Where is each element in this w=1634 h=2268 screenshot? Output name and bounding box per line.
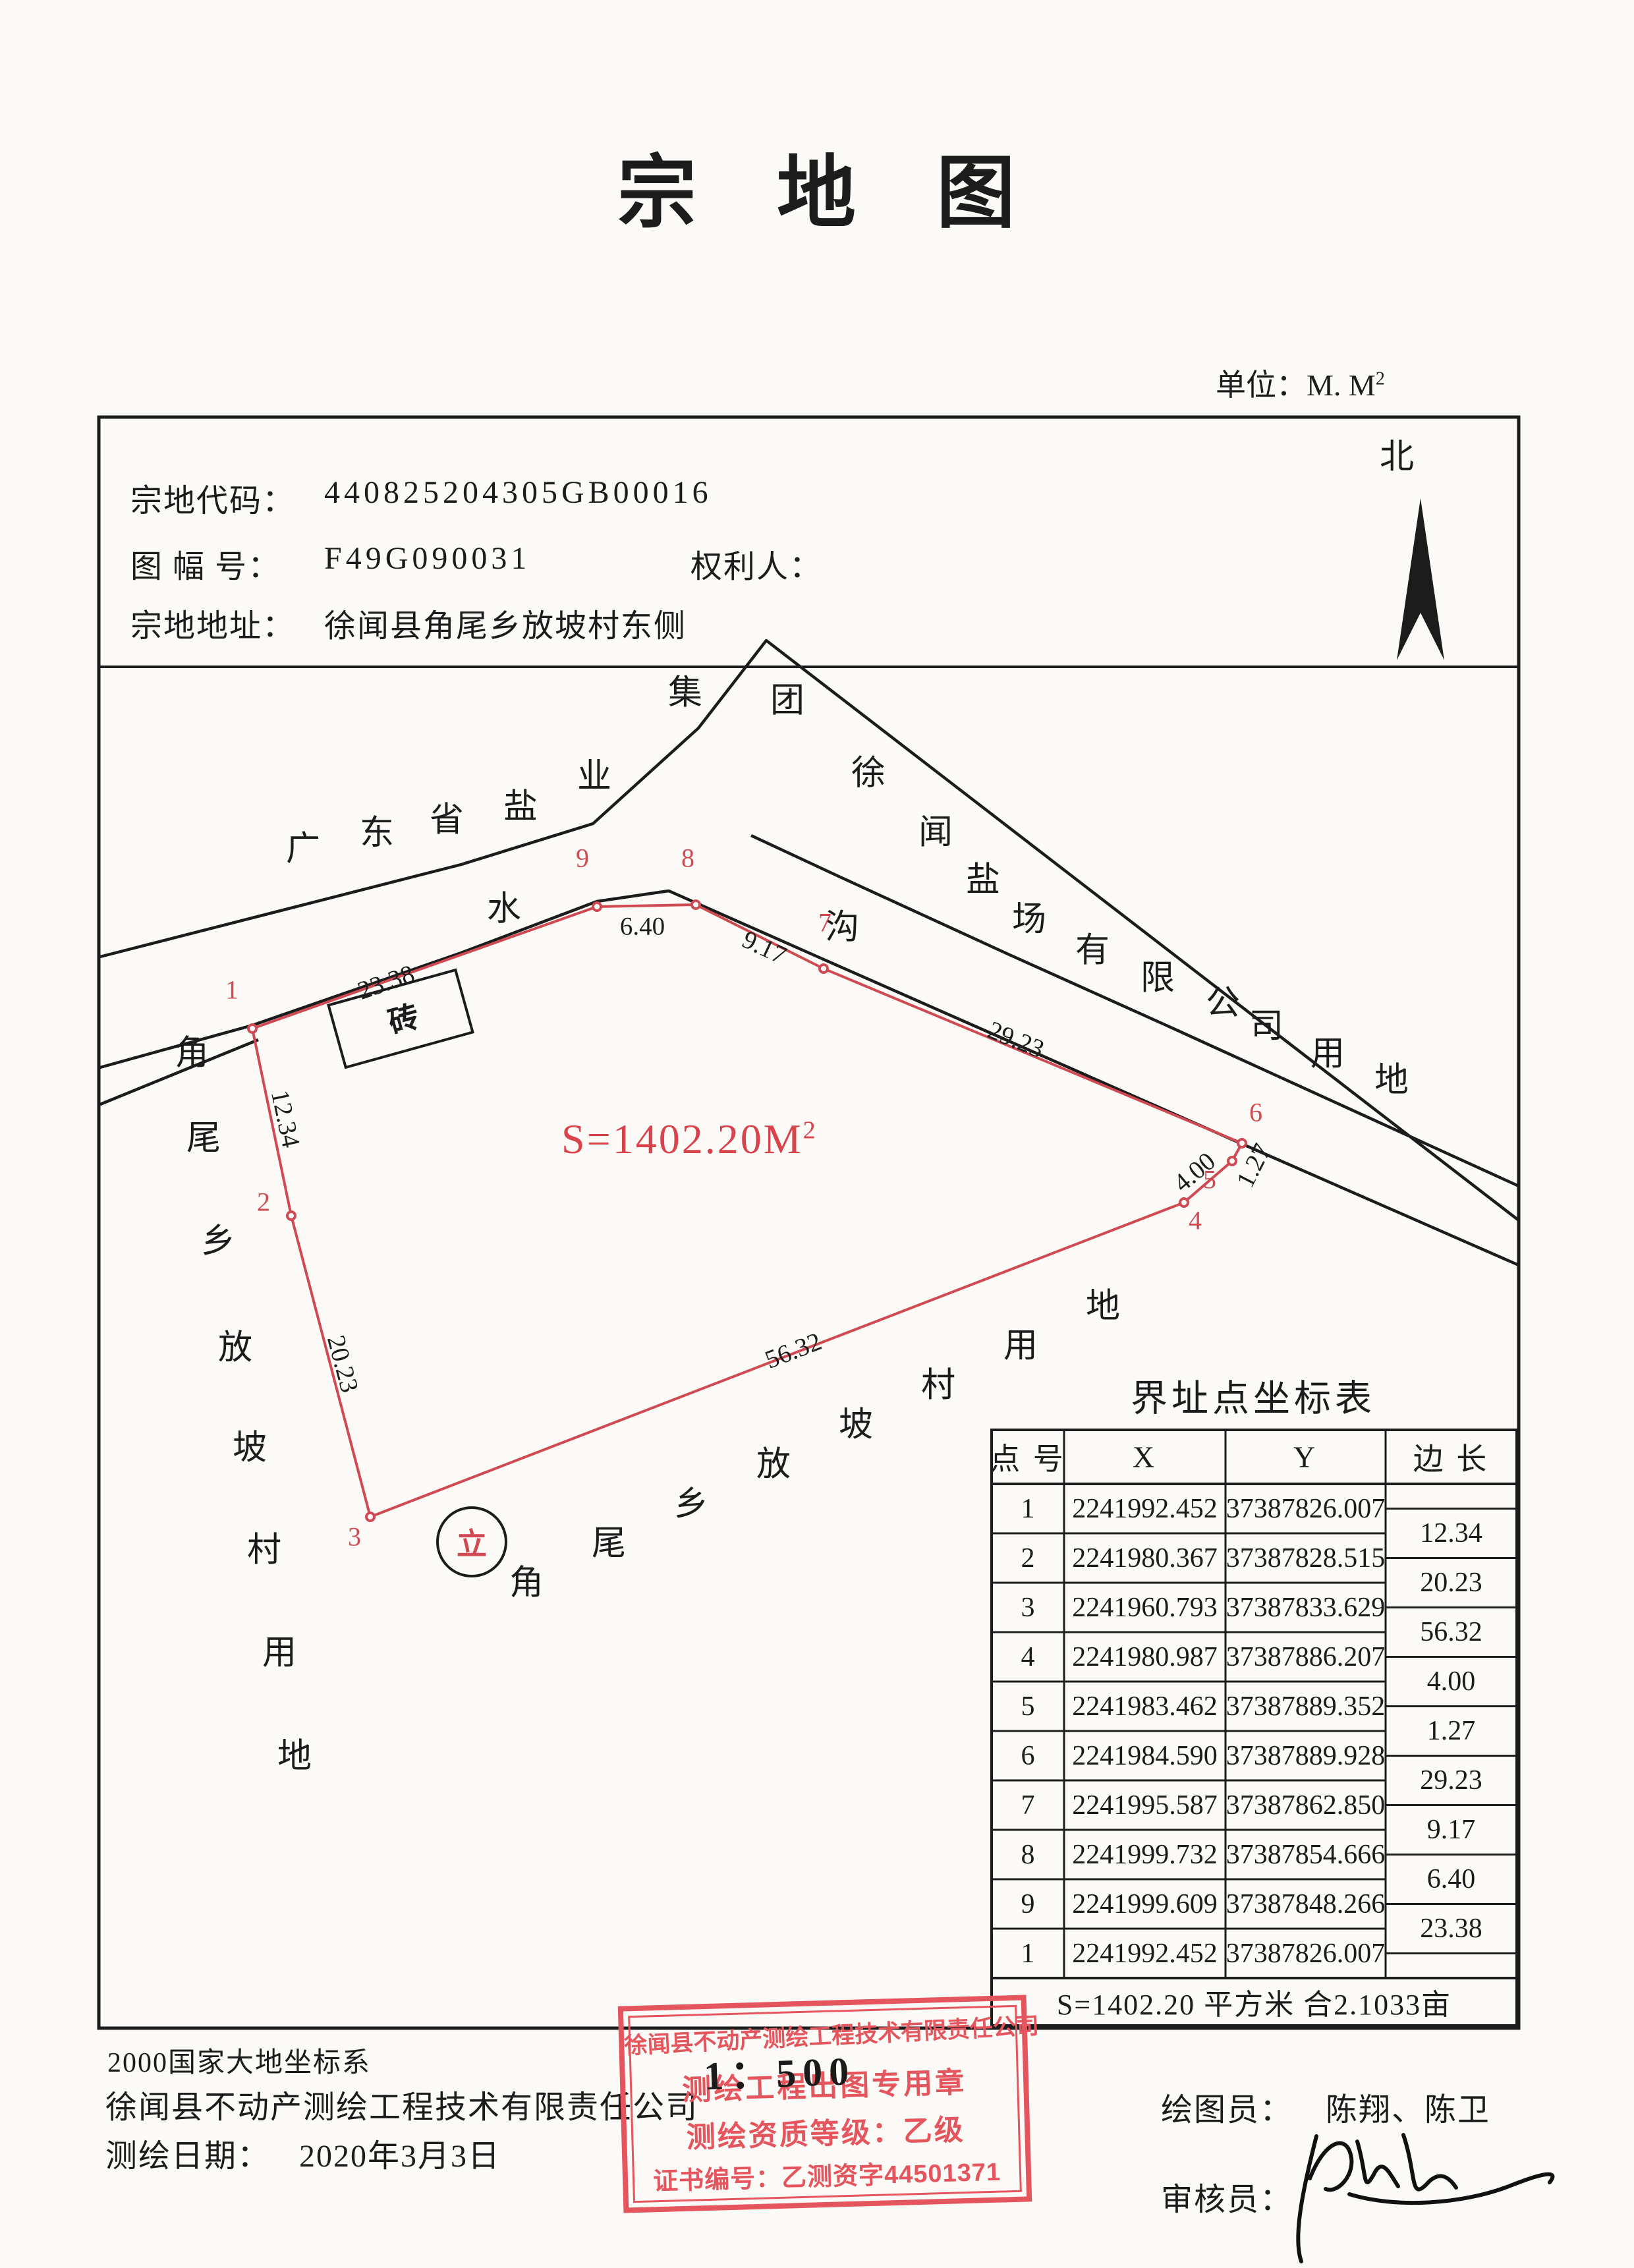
map-text-char-12: 有: [1075, 922, 1110, 972]
map-text-char-33: 村: [921, 1357, 955, 1407]
map-text-char-31: 放: [756, 1436, 791, 1486]
checker-signature-stroke-1: [1298, 2136, 1316, 2261]
table-y-coord-5: 37387889.352: [1226, 1691, 1386, 1722]
map-frame-border: [99, 417, 1519, 2028]
map-text-char-29: 尾: [592, 1516, 626, 1565]
boundary-point-number-7: 7: [818, 907, 831, 938]
map-text-char-7: 团: [770, 673, 804, 722]
survey-date-row: 测绘日期： 2020年3月3日: [105, 2130, 501, 2176]
table-point-no-8: 8: [1021, 1839, 1035, 1871]
right-holder-label: 权利人：: [690, 540, 822, 586]
map-text-char-27: 地: [277, 1728, 312, 1778]
table-x-coord-7: 2241995.587: [1072, 1790, 1218, 1821]
table-header-4: 边 长: [1413, 1435, 1490, 1479]
sheet-number-label: 图 幅 号：: [130, 540, 281, 586]
boundary-point-dot-5: [1228, 1157, 1236, 1165]
table-header-3: Y: [1293, 1440, 1318, 1475]
map-text-char-21: 尾: [186, 1110, 221, 1160]
table-point-no-1: 1: [1021, 1493, 1035, 1525]
checker-signature-stroke-2: [1310, 2143, 1351, 2190]
map-text-char-34: 用: [1003, 1318, 1038, 1367]
unit-label: 单位：M. M2: [1216, 361, 1385, 405]
table-y-coord-3: 37387833.629: [1226, 1592, 1386, 1624]
parcel-address-label: 宗地地址：: [130, 600, 295, 646]
table-x-coord-6: 2241984.590: [1072, 1740, 1218, 1772]
boundary-point-dot-9: [593, 903, 601, 911]
table-edge-length-8: 6.40: [1427, 1863, 1476, 1895]
table-x-coord-4: 2241980.987: [1072, 1641, 1218, 1673]
boundary-point-dot-1: [248, 1025, 256, 1033]
map-text-char-13: 限: [1141, 950, 1175, 1000]
table-point-no-3: 3: [1021, 1592, 1035, 1624]
table-y-coord-4: 37387886.207: [1226, 1641, 1386, 1673]
checker-label: 审核员：: [1161, 2173, 1293, 2219]
map-text-char-5: 业: [577, 749, 611, 798]
map-text-char-16: 用: [1310, 1026, 1345, 1075]
map-text-char-1: 广: [286, 821, 320, 870]
table-point-no-2: 2: [1021, 1543, 1035, 1574]
table-y-coord-2: 37387828.515: [1226, 1543, 1386, 1574]
boundary-point-number-9: 9: [576, 843, 589, 874]
boundary-point-number-2: 2: [257, 1187, 270, 1218]
table-y-coord-10: 37387826.007: [1226, 1938, 1386, 1970]
map-text-char-20: 角: [175, 1025, 209, 1075]
table-x-coord-10: 2241992.452: [1072, 1938, 1218, 1970]
parcel-map-document: 宗 地 图 单位：M. M2 北 宗地代码： 440825204305GB000…: [0, 0, 1634, 2268]
parcel-code-value: 440825204305GB00016: [324, 474, 712, 511]
map-text-char-9: 闻: [918, 805, 953, 854]
table-x-coord-2: 2241980.367: [1072, 1543, 1218, 1574]
table-edge-length-7: 9.17: [1427, 1814, 1476, 1846]
map-text-char-17: 地: [1374, 1052, 1409, 1102]
boundary-point-number-6: 6: [1249, 1097, 1262, 1128]
sheet-number-value: F49G090031: [324, 540, 530, 577]
boundary-point-number-1: 1: [225, 975, 239, 1006]
boundary-point-dot-6: [1238, 1139, 1246, 1147]
table-x-coord-9: 2241999.609: [1072, 1888, 1218, 1920]
table-edge-length-2: 20.23: [1420, 1567, 1482, 1599]
table-point-no-5: 5: [1021, 1691, 1035, 1722]
road-line-3: [100, 891, 1519, 1265]
map-text-char-28: 角: [509, 1555, 544, 1604]
map-text-char-8: 徐: [851, 745, 886, 795]
boundary-point-number-8: 8: [681, 843, 694, 874]
parcel-address-value: 徐闻县角尾乡放坡村东侧: [324, 600, 687, 646]
datum-note: 2000国家大地坐标系: [107, 2040, 371, 2080]
table-header-2: X: [1133, 1440, 1157, 1475]
boundary-point-dot-3: [366, 1513, 374, 1521]
table-edge-length-5: 1.27: [1427, 1715, 1476, 1747]
map-text-char-3: 省: [430, 792, 464, 841]
map-text-char-6: 集: [668, 665, 702, 714]
table-point-no-7: 7: [1021, 1790, 1035, 1821]
table-area-summary: S=1402.20 平方米 合2.1033亩: [1057, 1981, 1451, 2023]
table-point-no-9: 9: [1021, 1888, 1035, 1920]
map-scale: 1：500: [703, 2039, 857, 2101]
table-point-no-4: 4: [1021, 1641, 1035, 1673]
survey-date-label: 测绘日期：: [105, 2139, 270, 2174]
map-text-char-2: 东: [360, 805, 394, 855]
survey-date-value: 2020年3月3日: [299, 2139, 501, 2174]
boundary-point-number-3: 3: [348, 1521, 361, 1552]
checker-signature-stroke-4: [1403, 2135, 1456, 2190]
north-arrow-icon: [1397, 498, 1444, 660]
drafter-label: 绘图员：: [1161, 2093, 1293, 2128]
checker-signature-stroke-3: [1357, 2141, 1398, 2186]
table-x-coord-3: 2241960.793: [1072, 1592, 1218, 1624]
map-text-char-26: 用: [262, 1625, 296, 1674]
page-title: 宗 地 图: [617, 128, 1046, 243]
boundary-point-dot-7: [820, 965, 828, 973]
coordinate-table-title: 界址点坐标表: [1131, 1369, 1376, 1423]
table-header-1: 点 号: [990, 1435, 1066, 1479]
monument-symbol-glyph: 立: [457, 1520, 487, 1564]
survey-company: 徐闻县不动产测绘工程技术有限责任公司: [105, 2081, 698, 2127]
table-edge-length-3: 56.32: [1420, 1616, 1482, 1648]
parcel-area-label: S=1402.20M2: [561, 1115, 818, 1164]
map-text-char-15: 司: [1249, 998, 1283, 1048]
boundary-point-dot-8: [692, 901, 700, 909]
table-x-coord-1: 2241992.452: [1072, 1493, 1218, 1525]
road-line-2: [751, 836, 1519, 1186]
table-y-coord-1: 37387826.007: [1226, 1493, 1386, 1525]
map-text-char-23: 放: [218, 1320, 252, 1369]
checker-signature-stroke-5: [1349, 2174, 1553, 2203]
map-text-char-18: 水: [487, 881, 521, 930]
north-label: 北: [1380, 429, 1414, 478]
table-edge-length-6: 29.23: [1420, 1765, 1482, 1796]
map-text-char-4: 盐: [503, 779, 538, 828]
edge-length-label-8: 6.40: [620, 912, 665, 942]
map-text-char-24: 坡: [233, 1420, 267, 1469]
map-text-char-10: 盐: [966, 852, 1000, 901]
table-edge-length-4: 4.00: [1427, 1666, 1476, 1697]
table-point-no-6: 6: [1021, 1740, 1035, 1772]
drafter-names: 陈翔、陈卫: [1326, 2093, 1490, 2128]
table-edge-length-9: 23.38: [1420, 1913, 1482, 1944]
table-x-coord-8: 2241999.732: [1072, 1839, 1218, 1871]
drafter-row: 绘图员： 陈翔、陈卫: [1161, 2084, 1490, 2130]
table-y-coord-6: 37387889.928: [1226, 1740, 1386, 1772]
company-seal-stamp: 徐闻县不动产测绘工程技术有限责任公司 测绘工程出图专用章 测绘资质等级：乙级 证…: [618, 1995, 1032, 2213]
map-text-char-11: 场: [1012, 892, 1046, 941]
map-text-char-30: 乡: [674, 1476, 708, 1525]
boundary-point-number-4: 4: [1189, 1205, 1202, 1236]
map-text-char-22: 乡: [201, 1213, 235, 1262]
parcel-code-label: 宗地代码：: [130, 474, 295, 521]
table-edge-length-1: 12.34: [1420, 1517, 1482, 1549]
boundary-point-dot-2: [287, 1212, 295, 1220]
map-text-char-32: 坡: [839, 1397, 873, 1446]
table-y-coord-7: 37387862.850: [1226, 1790, 1386, 1821]
map-text-char-25: 村: [247, 1522, 281, 1572]
table-x-coord-5: 2241983.462: [1072, 1691, 1218, 1722]
table-y-coord-8: 37387854.666: [1226, 1839, 1386, 1871]
table-y-coord-9: 37387848.266: [1226, 1888, 1386, 1920]
boundary-point-dot-4: [1180, 1199, 1188, 1206]
map-text-char-14: 公: [1206, 975, 1240, 1025]
boundary-point-number-5: 5: [1203, 1164, 1216, 1195]
table-point-no-10: 1: [1021, 1938, 1035, 1970]
map-text-char-35: 地: [1086, 1278, 1120, 1328]
